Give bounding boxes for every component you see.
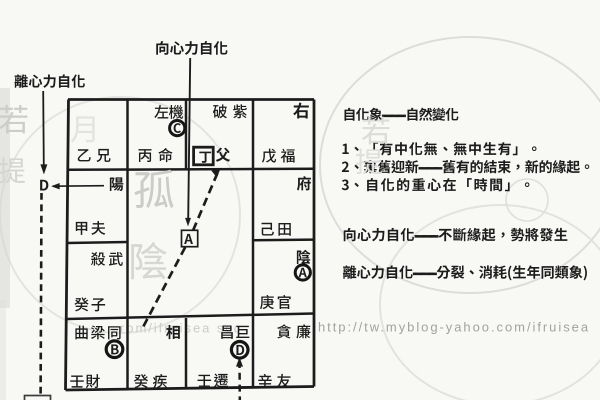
svg-text:http://tw.myblog-yahoo.com/ifr: http://tw.myblog-yahoo.com/ifruisea [318,320,590,335]
